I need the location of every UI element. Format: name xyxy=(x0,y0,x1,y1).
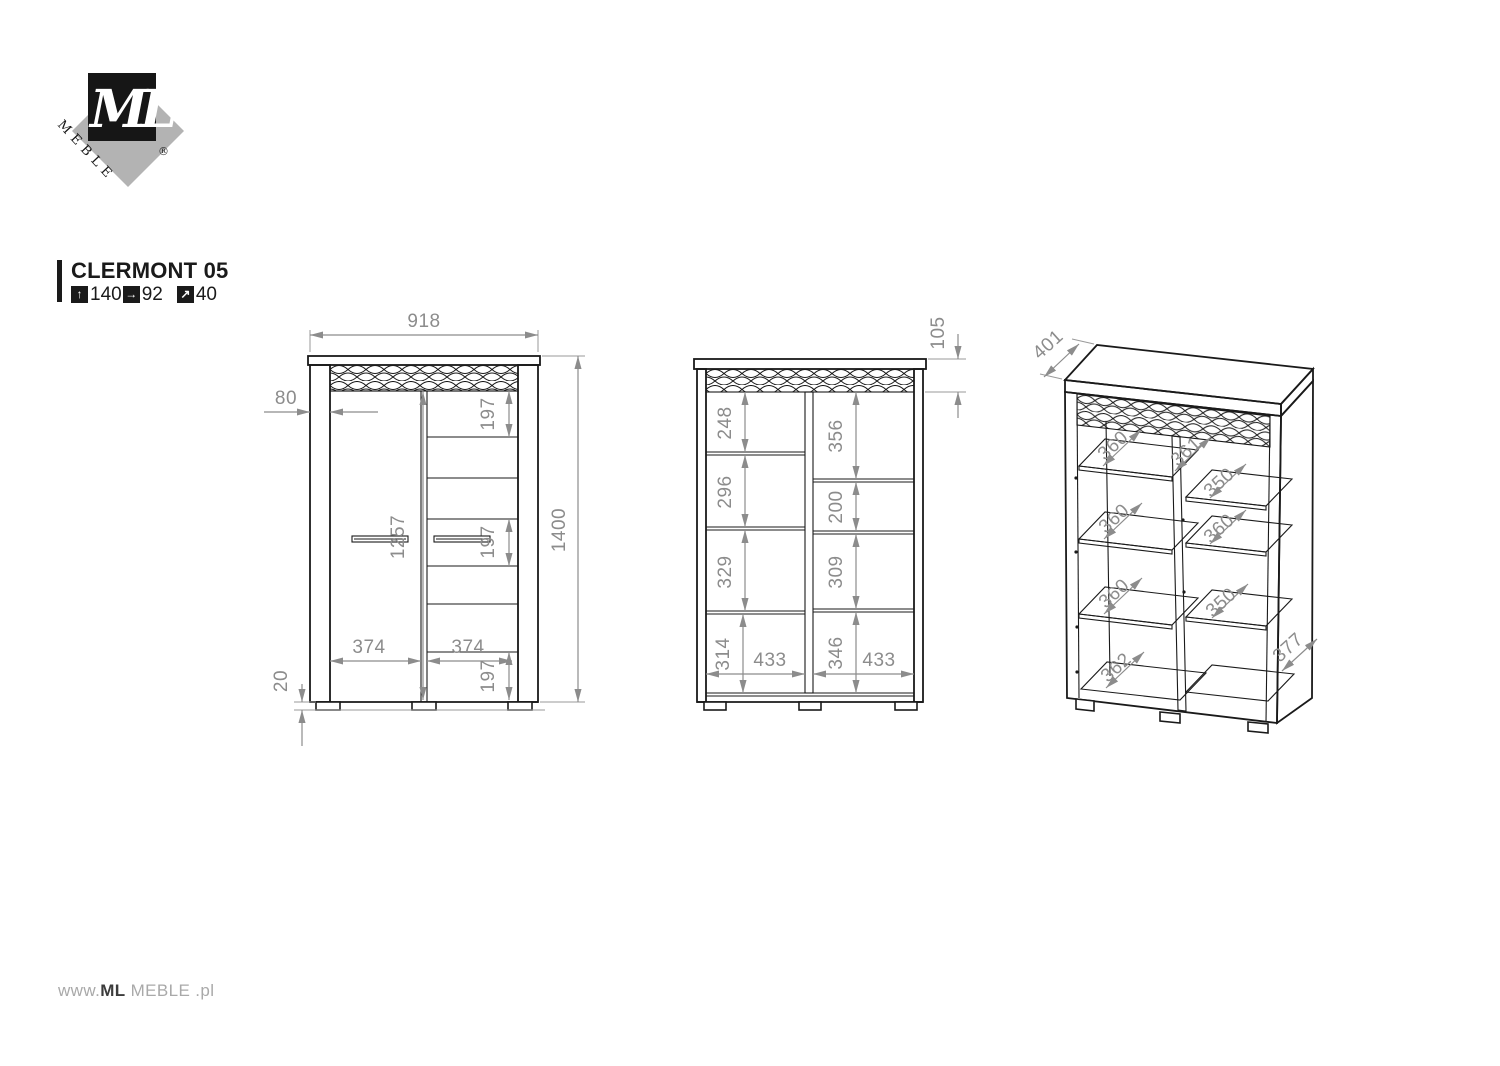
dim-section-right-1: 356 xyxy=(826,419,847,452)
dim-front-section-top: 197 xyxy=(478,397,499,430)
dim-section-left-3: 329 xyxy=(715,555,736,588)
dim-section-left-width: 433 xyxy=(753,650,786,671)
front-view: 918 1400 80 1257 197 197 197 374 xyxy=(264,311,585,746)
dim-front-side-width: 80 xyxy=(275,388,297,409)
dim-section-left-1: 248 xyxy=(715,406,736,439)
front-view-linework xyxy=(308,356,540,710)
footer-tld: .pl xyxy=(195,981,214,1000)
dim-left-shelf-4: 362 xyxy=(1097,649,1136,687)
footer-brand: ML xyxy=(100,981,125,1000)
dim-right-shelf-1: 350 xyxy=(1200,464,1239,502)
dim-section-left-2: 296 xyxy=(715,475,736,508)
dim-left-shelf-1: 360 xyxy=(1094,427,1133,465)
spec-sheet-page: ML ® MEBLE CLERMONT 05 ↑ 140 → 92 ↗ 40 xyxy=(0,0,1500,1066)
footer-www: www. xyxy=(58,981,100,1000)
dim-section-left-4: 314 xyxy=(713,637,734,670)
footer-meble: MEBLE xyxy=(131,981,191,1000)
dim-section-right-4: 346 xyxy=(826,636,847,669)
dim-front-total-height: 1400 xyxy=(549,508,570,552)
dim-section-right-3: 309 xyxy=(826,555,847,588)
dim-front-total-width: 918 xyxy=(407,311,440,332)
section-view: 105 248 296 329 314 356 200 309 346 433 xyxy=(694,316,966,710)
dim-right-shelf-2: 360 xyxy=(1200,510,1239,548)
dim-section-right-2: 200 xyxy=(826,490,847,523)
dim-front-section-middle: 197 xyxy=(478,525,499,558)
dim-left-shelf-3: 360 xyxy=(1095,575,1134,613)
dim-right-shelf-3: 350 xyxy=(1202,584,1241,622)
technical-drawing: 918 1400 80 1257 197 197 197 374 xyxy=(0,0,1500,1066)
dim-side-depth: 377 xyxy=(1269,629,1308,667)
dim-front-section-bottom: 197 xyxy=(478,659,499,692)
dim-top-depth: 401 xyxy=(1029,326,1068,364)
dim-front-left-door-width: 374 xyxy=(352,637,385,658)
footer-url: www.MLMEBLE.pl xyxy=(58,981,214,1001)
dim-front-right-door-width: 374 xyxy=(451,637,484,658)
dim-section-right-width: 433 xyxy=(862,650,895,671)
perspective-view: 401 360 360 360 362 361 350 360 350 377 xyxy=(1029,326,1317,733)
dim-section-crown-height: 105 xyxy=(928,316,949,349)
dim-left-shelf-2: 360 xyxy=(1095,500,1134,538)
dim-front-foot-height: 20 xyxy=(271,670,292,692)
dim-front-door-height: 1257 xyxy=(388,515,409,559)
